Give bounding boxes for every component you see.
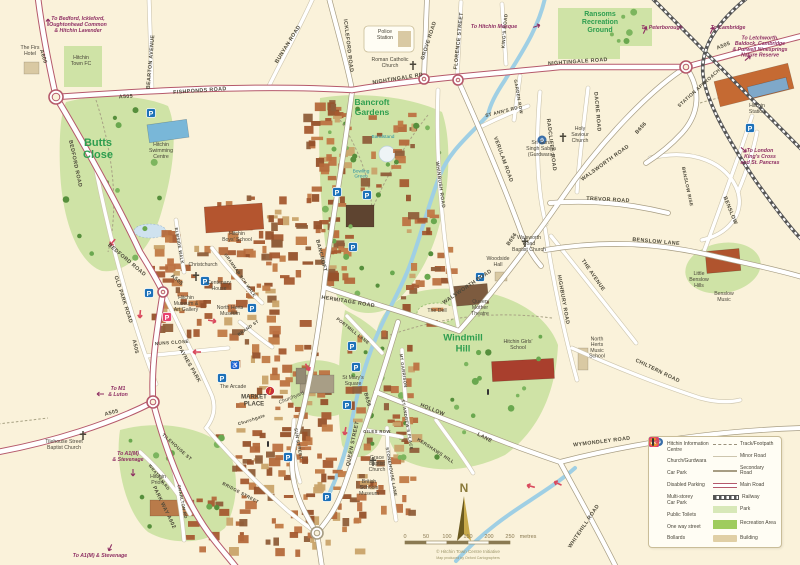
place-label: HitchinBoys' School (222, 231, 252, 243)
legend-item-label: Recreation Area (740, 521, 776, 527)
garden-feature-label: BowlingGreen (353, 168, 370, 179)
building (359, 512, 366, 519)
building (394, 445, 404, 452)
building (432, 278, 441, 285)
road-label: BEARTON AVENUE (146, 34, 157, 89)
building (226, 518, 233, 526)
building (292, 217, 299, 221)
tree (630, 9, 637, 16)
sec-road (560, 462, 616, 565)
building (194, 246, 199, 252)
building (335, 111, 340, 116)
building (335, 117, 340, 123)
building (326, 458, 337, 461)
legend-item-label: Hitchin Information Centre (667, 442, 709, 453)
compass-north-label: N (460, 481, 469, 495)
building (317, 454, 322, 459)
legend-item-label: Minor Road (740, 454, 766, 460)
building (278, 470, 285, 477)
building (328, 176, 337, 180)
building (201, 303, 206, 308)
legend-item: One way street (653, 525, 713, 531)
building (284, 277, 295, 284)
tree (113, 116, 117, 120)
road-label: GRAMMAR SCH WALK (223, 252, 257, 298)
tree (471, 413, 476, 418)
building (176, 287, 180, 293)
building (266, 452, 275, 458)
building (325, 118, 331, 121)
building (401, 296, 406, 299)
building (159, 266, 168, 269)
building (333, 487, 341, 491)
road-label: Churchgate (237, 413, 266, 427)
disabled-parking-icon: ♿ (231, 361, 240, 370)
tree (454, 405, 459, 410)
building (314, 484, 325, 490)
building (402, 495, 406, 502)
building (284, 495, 293, 498)
church-cross-icon (560, 133, 566, 142)
building (282, 216, 289, 225)
tree (621, 15, 625, 19)
building (252, 344, 259, 353)
tree (508, 405, 515, 412)
building (295, 550, 300, 557)
road-label: BENSLOW RISE (681, 166, 694, 206)
scale-tick-label: 50 (423, 534, 429, 540)
tree (424, 274, 430, 280)
building (243, 441, 251, 447)
legend-item-label: Track/Footpath (740, 442, 773, 448)
building (413, 418, 418, 423)
destination-label: To Bedford, Ickleford,Oughtonhead Common… (49, 16, 107, 34)
building (328, 273, 340, 282)
tree (364, 350, 368, 354)
place-label: North HertsMuseum (217, 305, 244, 317)
landmark-building (24, 62, 39, 74)
building (237, 250, 246, 257)
building (431, 267, 441, 271)
building (416, 280, 420, 285)
building (352, 386, 362, 393)
tree (63, 196, 70, 203)
building (154, 245, 165, 249)
svg-text:P: P (286, 455, 291, 462)
building (240, 479, 249, 485)
building (236, 428, 245, 432)
tree (390, 271, 395, 276)
tree (147, 524, 152, 529)
secondary-swatch (713, 470, 737, 472)
building (408, 212, 419, 219)
map-legend: iHitchin Information Centre☬Church/Gurdw… (648, 436, 782, 548)
building (406, 195, 411, 201)
map-canvas: PPPPPPPPPPPPPPPP♿i☬A600A505FISHPONDS ROA… (0, 0, 800, 565)
bollard-icon (487, 389, 489, 395)
garden-feature-label: Bandstand (372, 134, 395, 140)
svg-text:P: P (149, 111, 154, 118)
building (391, 386, 399, 393)
tree (376, 284, 380, 288)
building (338, 203, 346, 207)
building (407, 345, 413, 352)
main-swatch (713, 483, 737, 488)
building (406, 285, 414, 290)
tree (214, 505, 219, 510)
building (371, 152, 376, 160)
tree (348, 224, 352, 228)
svg-text:P: P (165, 315, 170, 322)
building (342, 266, 347, 271)
building (311, 121, 320, 126)
legend-item: PCar Park (653, 471, 713, 477)
destination-arrow (97, 392, 104, 396)
scale-bar-segment (468, 541, 489, 544)
map-credit-sub: Map produced by Oxford Cartographers (436, 556, 500, 560)
building (252, 353, 260, 359)
building (280, 256, 286, 262)
building (271, 223, 278, 232)
tree (386, 162, 390, 166)
sec-road (646, 67, 696, 163)
building (399, 140, 410, 146)
legend-item-label: Public Toilets (667, 513, 696, 519)
one-way-arrow (138, 310, 143, 318)
building (254, 240, 266, 244)
building (321, 412, 331, 419)
place-label: MARKETPLACE (241, 395, 267, 408)
building (199, 546, 206, 552)
scale-tick-label: 0 (403, 534, 406, 540)
svg-text:P: P (365, 193, 370, 200)
roundabout-island (456, 78, 460, 82)
tree (77, 234, 82, 239)
place-label: The FirsHotel (20, 45, 39, 57)
scale-tick-label: 100 (442, 534, 451, 540)
park-label: BancroftGardens (355, 97, 390, 117)
building (205, 313, 213, 319)
road-label: CHILTERN ROAD (634, 358, 680, 385)
tree (370, 442, 374, 446)
road-label: A505 (119, 94, 134, 101)
legend-item: Railway (713, 495, 777, 501)
building (262, 356, 271, 363)
car-park-icon: P (363, 191, 372, 200)
building (265, 231, 274, 240)
building (306, 247, 312, 251)
road-label: A505 (131, 339, 140, 354)
building (266, 540, 271, 545)
building (259, 231, 263, 239)
building (296, 237, 307, 245)
building (311, 137, 323, 140)
building (364, 444, 371, 451)
building (272, 368, 278, 376)
main-road (38, 0, 56, 97)
building (342, 527, 347, 533)
legend-item: Minor Road (713, 454, 777, 460)
building (272, 444, 283, 452)
building (327, 138, 335, 144)
building (280, 432, 292, 437)
building (278, 218, 283, 225)
minor-road (538, 92, 546, 224)
building (204, 246, 210, 253)
building (288, 252, 298, 261)
tree (343, 254, 349, 260)
scale-tick-label: 250 (505, 534, 514, 540)
minor-swatch (713, 456, 737, 457)
legend-item: PMulti-storey Car Park (653, 495, 713, 506)
building (267, 316, 276, 323)
building (187, 330, 192, 339)
tree (516, 394, 520, 398)
building (269, 458, 281, 466)
car-park-icon: P (145, 289, 154, 298)
building (303, 261, 314, 264)
place-label: The Dell (427, 308, 446, 314)
place-label: HitchinPriory (150, 474, 166, 486)
tree (626, 29, 633, 36)
building (315, 469, 325, 473)
building (272, 301, 279, 308)
building (305, 446, 311, 450)
scale-bar-segment (489, 541, 510, 544)
building (203, 300, 211, 304)
scale-tick-label: 150 (463, 534, 472, 540)
building (247, 460, 254, 465)
building (167, 258, 174, 265)
building (232, 466, 237, 472)
tree (522, 386, 526, 390)
building (197, 499, 203, 503)
tree (157, 196, 162, 201)
building (312, 187, 322, 192)
tree (115, 188, 120, 193)
gardens-pond (379, 146, 395, 162)
building (355, 549, 366, 555)
building (186, 535, 195, 540)
place-label: The Arcade (220, 384, 247, 390)
building (427, 210, 435, 217)
svg-text:P: P (250, 306, 255, 313)
tree (428, 251, 433, 256)
tree (536, 357, 541, 362)
tree (398, 455, 403, 460)
place-label: QueenMotherTheatre (471, 299, 489, 317)
svg-text:P: P (220, 376, 225, 383)
park-swatch (713, 506, 737, 513)
place-label: HitchinStation (749, 103, 765, 115)
legend-item-label: Car Park (667, 471, 687, 477)
building (269, 326, 280, 335)
building (275, 210, 282, 215)
roundabout-island (150, 399, 156, 405)
building (303, 114, 312, 123)
tree (376, 192, 381, 197)
road-label: ELMSIDE WALK (174, 227, 185, 264)
landmark-building (296, 368, 306, 384)
building (290, 532, 298, 538)
building (319, 163, 329, 171)
car-park-icon: P (323, 493, 332, 502)
building (331, 104, 337, 112)
legend-item-label: Main Road (740, 483, 764, 489)
tree (328, 130, 332, 134)
building (168, 231, 175, 235)
building (262, 376, 268, 385)
building (391, 165, 401, 169)
building (219, 509, 229, 516)
tree (539, 335, 543, 339)
building (245, 339, 249, 345)
building (280, 390, 288, 394)
building (193, 329, 199, 337)
building (275, 548, 285, 556)
svg-text:P: P (350, 344, 355, 351)
tree (140, 495, 145, 500)
place-label: PoliceStation (377, 29, 393, 41)
tree (322, 206, 329, 213)
building (399, 476, 409, 483)
place-label: WalsworthRoadBaptist Church (512, 235, 546, 253)
building (279, 348, 287, 354)
svg-text:P: P (351, 245, 356, 252)
road-label: STATION APPROACH (677, 67, 722, 109)
tree (450, 398, 454, 402)
legend-item: Park (713, 506, 777, 513)
legend-item: Recreation Area (713, 520, 777, 529)
destination-label: To Peterborough (641, 25, 683, 31)
building (354, 518, 361, 524)
building (409, 274, 415, 278)
building (197, 319, 202, 326)
church-cross-icon (410, 61, 416, 70)
place-label: NorthHertsMusicSchool (589, 336, 605, 359)
building (274, 417, 283, 420)
legend-item-label: One way street (667, 525, 701, 531)
building (247, 195, 252, 201)
tree (132, 255, 138, 261)
building (381, 506, 387, 515)
building (340, 196, 345, 203)
building (279, 196, 287, 204)
building (295, 345, 303, 351)
building (320, 399, 328, 405)
footpath (0, 418, 48, 424)
destination-label: To LondonKing's Crossand St. Pancras (741, 148, 780, 166)
building (229, 547, 239, 556)
building (334, 250, 341, 253)
building (224, 317, 232, 325)
building (321, 229, 325, 232)
legend-item-label: Church/Gurdwara (667, 459, 706, 465)
tree (617, 39, 621, 43)
building (378, 485, 383, 490)
place-label: Roman CatholicChurch (372, 57, 409, 69)
tree (425, 125, 430, 130)
building (344, 278, 355, 284)
building (382, 330, 386, 337)
building (381, 173, 392, 177)
building (272, 518, 276, 523)
road-label: B656 (634, 121, 648, 136)
scale-unit-label: metres (520, 534, 537, 540)
scale-bar-segment (405, 541, 426, 544)
tree (151, 159, 158, 166)
legend-item: ☬Church/Gurdwara (653, 459, 713, 465)
information-centre-icon: i (266, 387, 275, 396)
legend-symbols-column: iHitchin Information Centre☬Church/Gurdw… (653, 442, 713, 542)
building (296, 270, 301, 278)
car-park-icon: P (333, 188, 342, 197)
building (410, 144, 415, 148)
destination-label: To Cambridge (711, 25, 746, 31)
building (262, 246, 266, 253)
scale-bar-segment (447, 541, 468, 544)
building (165, 236, 173, 243)
building (197, 252, 209, 256)
tree (350, 157, 356, 163)
building (300, 320, 312, 327)
building (312, 194, 319, 202)
building (323, 460, 334, 468)
building (393, 125, 398, 132)
tree (332, 147, 337, 152)
building (410, 477, 416, 481)
building (315, 103, 326, 112)
legend-item-label: Bollards (667, 536, 685, 542)
sec-road (459, 67, 686, 331)
tree (413, 123, 419, 129)
place-label: BenslowMusic (714, 291, 734, 303)
building (262, 286, 270, 291)
building (359, 474, 365, 478)
car-park-icon: P (218, 374, 227, 383)
sec-road-casing (646, 67, 696, 163)
building (269, 252, 280, 258)
building (257, 284, 261, 288)
road-label: BUNYAN ROAD (274, 24, 302, 64)
building (304, 126, 313, 134)
map-credit: © Hitchin Town Centre Initiative (436, 548, 500, 554)
building (282, 365, 292, 373)
place-label: BritishSchoolsMuseum (359, 479, 379, 497)
building (356, 407, 366, 413)
multi-storey-car-park-icon: P (163, 313, 172, 322)
building (393, 414, 401, 418)
tree (89, 251, 94, 256)
tree (462, 430, 466, 434)
road-label: NUNS CLOSE (155, 339, 189, 346)
legend-item: Secondary Road (713, 466, 777, 477)
building (273, 538, 279, 546)
building (393, 422, 401, 426)
car-park-icon: P (746, 124, 755, 133)
building (255, 455, 263, 463)
building (304, 345, 311, 350)
pond (134, 224, 166, 238)
place-label: Christchurch (188, 262, 217, 268)
car-park-icon: P (348, 342, 357, 351)
building (306, 436, 311, 441)
roundabout-island (314, 530, 320, 536)
svg-text:P: P (748, 126, 753, 133)
building (326, 154, 332, 161)
building (328, 476, 335, 480)
place-label: St Mary'sSquare (342, 375, 364, 387)
